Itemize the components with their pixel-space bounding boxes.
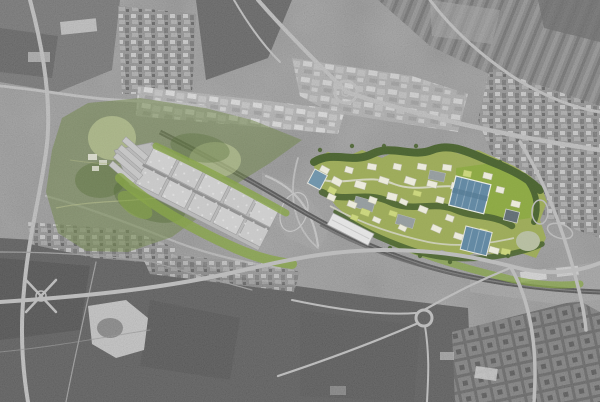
photo-grain-finish <box>0 0 600 402</box>
aerial-masterplan-image <box>0 0 600 402</box>
aerial-map-canvas <box>0 0 600 402</box>
